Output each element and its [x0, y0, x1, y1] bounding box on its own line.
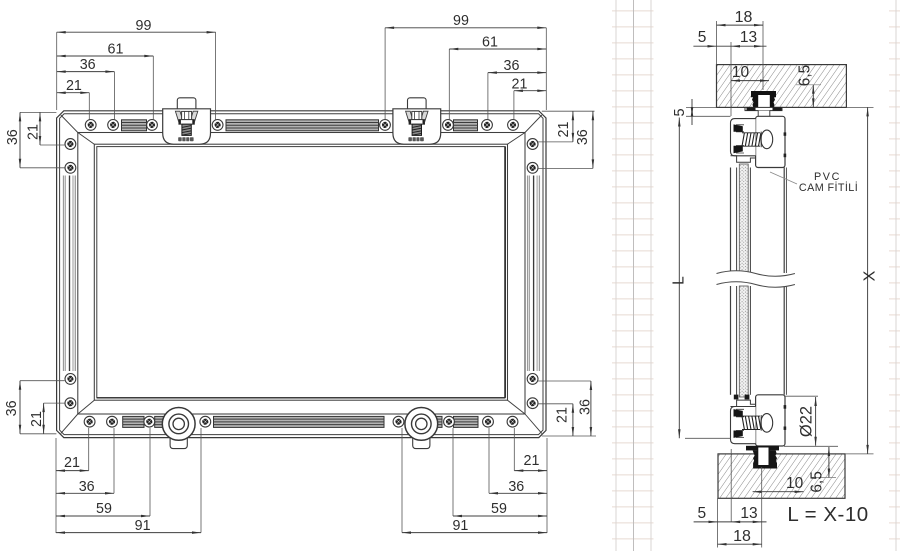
svg-text:36: 36 [575, 129, 591, 145]
svg-text:13: 13 [740, 505, 757, 522]
svg-text:10: 10 [732, 64, 750, 81]
svg-text:5: 5 [697, 505, 706, 522]
svg-text:21: 21 [66, 78, 82, 94]
svg-text:21: 21 [555, 407, 571, 423]
svg-text:59: 59 [96, 501, 112, 517]
svg-text:CAM FİTİLİ: CAM FİTİLİ [799, 181, 858, 194]
svg-text:10: 10 [786, 475, 804, 492]
svg-text:36: 36 [504, 58, 520, 74]
svg-text:21: 21 [524, 453, 540, 469]
svg-text:6,5: 6,5 [796, 65, 813, 87]
svg-text:21: 21 [29, 411, 45, 427]
svg-text:36: 36 [508, 479, 524, 495]
svg-text:6,5: 6,5 [808, 471, 825, 493]
svg-text:59: 59 [491, 501, 507, 517]
svg-text:99: 99 [453, 13, 469, 29]
svg-text:91: 91 [452, 518, 468, 534]
svg-text:5: 5 [672, 108, 688, 116]
svg-text:21: 21 [512, 76, 528, 92]
svg-text:Ø22: Ø22 [798, 406, 816, 437]
svg-text:PVC: PVC [814, 171, 841, 183]
svg-text:21: 21 [64, 455, 80, 471]
svg-text:61: 61 [108, 41, 124, 57]
svg-text:36: 36 [5, 129, 21, 145]
svg-text:99: 99 [136, 18, 152, 34]
svg-text:36: 36 [577, 399, 593, 415]
svg-text:21: 21 [25, 124, 41, 140]
svg-text:X: X [861, 270, 878, 281]
svg-text:18: 18 [735, 9, 753, 26]
svg-text:L = X-10: L = X-10 [787, 503, 868, 526]
svg-text:36: 36 [4, 400, 20, 416]
svg-text:61: 61 [482, 35, 498, 51]
svg-text:5: 5 [698, 29, 707, 46]
svg-text:21: 21 [556, 122, 572, 138]
svg-text:L: L [670, 276, 687, 285]
svg-text:18: 18 [733, 528, 751, 545]
svg-text:13: 13 [740, 29, 757, 46]
svg-text:36: 36 [80, 57, 96, 73]
svg-text:91: 91 [135, 518, 151, 534]
svg-text:36: 36 [79, 479, 95, 495]
